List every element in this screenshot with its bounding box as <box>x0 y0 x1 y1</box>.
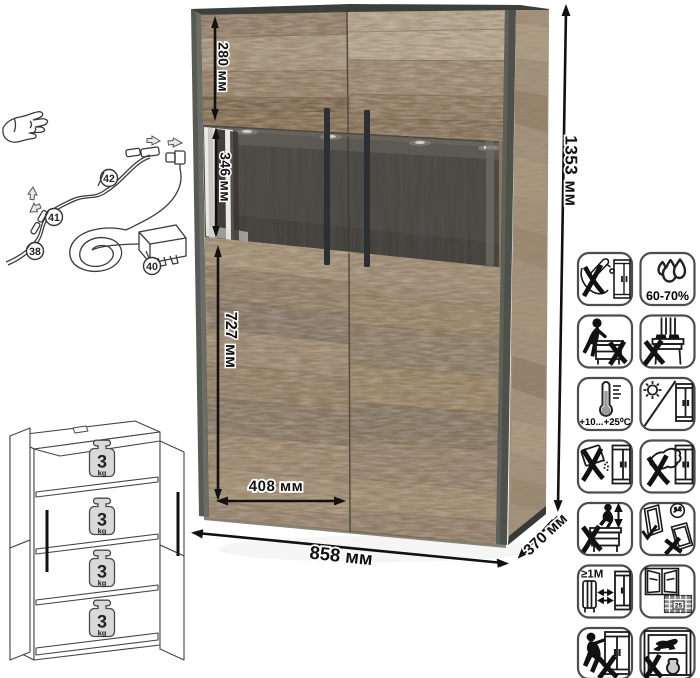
svg-text:kg: kg <box>98 579 107 588</box>
svg-text:408 мм: 408 мм <box>249 478 303 495</box>
svg-text:41: 41 <box>48 212 60 224</box>
svg-text:727 мм: 727 мм <box>222 312 239 369</box>
svg-text:≥1M: ≥1M <box>581 569 603 581</box>
svg-text:42: 42 <box>103 173 115 185</box>
svg-text:280 мм: 280 мм <box>215 42 231 92</box>
svg-text:+10...+25⁰C: +10...+25⁰C <box>579 417 630 428</box>
svg-text:346 мм: 346 мм <box>217 152 233 202</box>
svg-text:kg: kg <box>98 527 107 536</box>
svg-text:1353 мм: 1353 мм <box>562 135 581 206</box>
svg-text:60-70%: 60-70% <box>646 289 689 303</box>
svg-text:25: 25 <box>675 603 683 610</box>
svg-text:40: 40 <box>146 261 158 273</box>
svg-text:38: 38 <box>29 246 41 258</box>
svg-text:kg: kg <box>98 469 107 478</box>
svg-text:kg: kg <box>98 629 107 638</box>
